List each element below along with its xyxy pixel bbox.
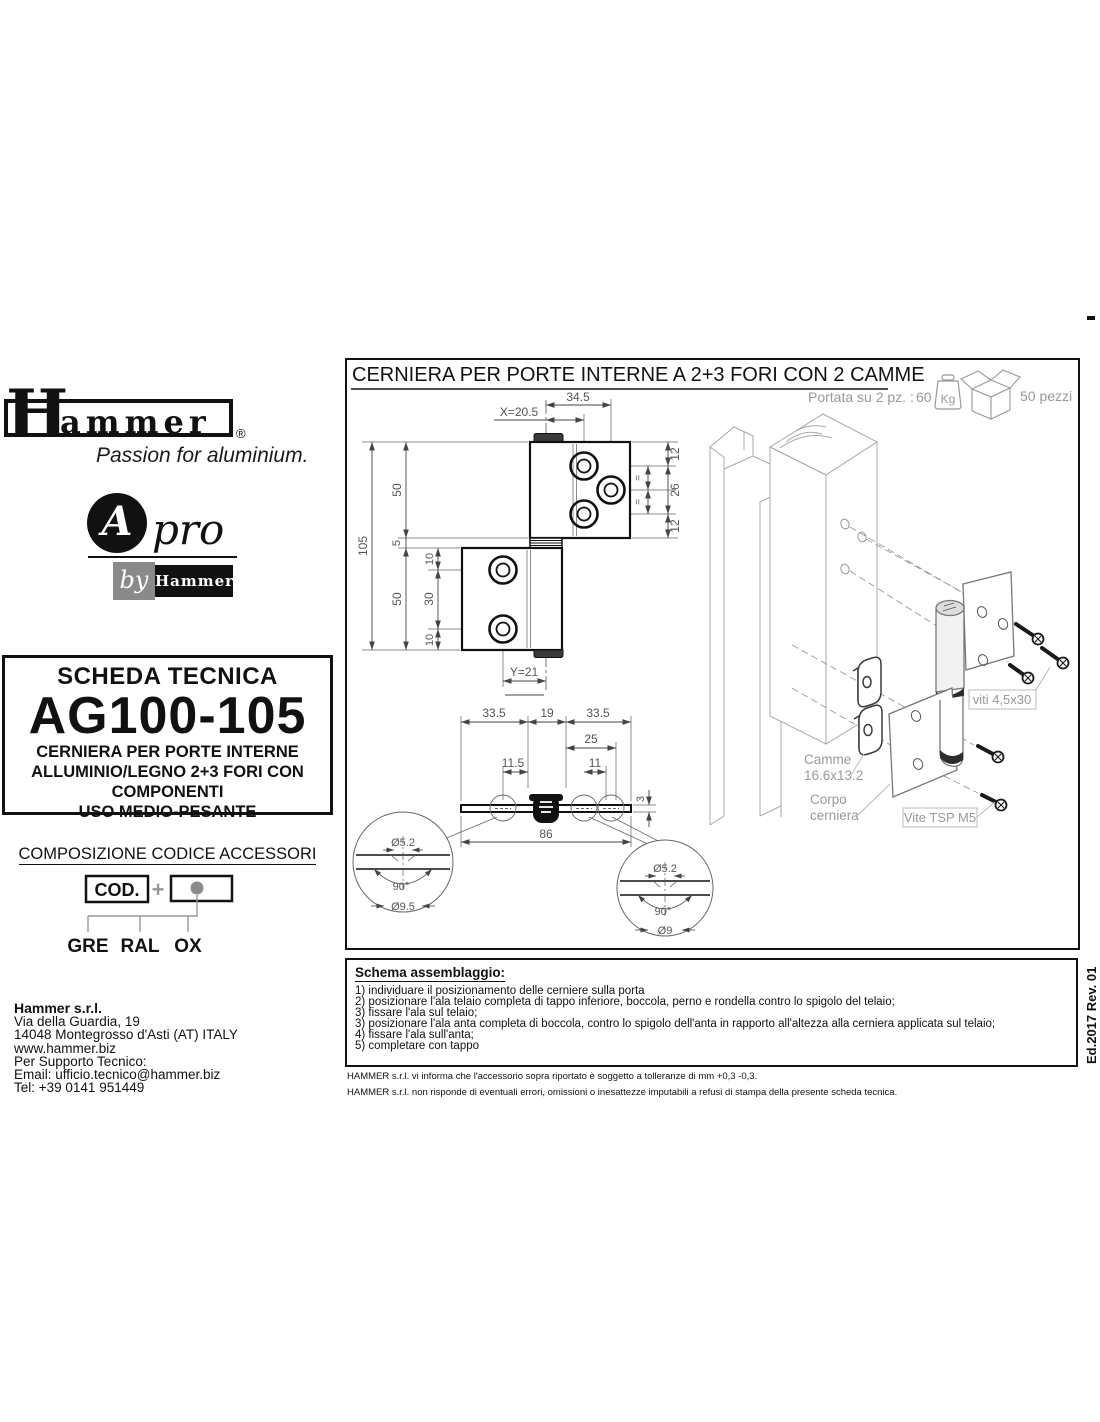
finish-dot <box>191 882 204 895</box>
capacity-label: Portata su 2 pz. : <box>808 389 914 405</box>
svg-text:X=20.5: X=20.5 <box>500 405 539 419</box>
capacity-unit: Kg <box>941 392 956 406</box>
company-line: Tel: +39 0141 951449 <box>14 1081 238 1094</box>
svg-text:86: 86 <box>539 827 553 841</box>
plus-sign: + <box>152 877 165 902</box>
finish-option-ox: OX <box>174 936 202 957</box>
corner-mark <box>1087 316 1095 320</box>
svg-text:=: = <box>633 499 644 505</box>
disclaimer-note: HAMMER s.r.l. non risponde di eventuali … <box>347 1087 897 1098</box>
svg-text:25: 25 <box>584 732 598 746</box>
knuckle <box>530 538 562 548</box>
svg-text:Ø5.2: Ø5.2 <box>391 837 415 849</box>
tech-sheet-box: SCHEDA TECNICA AG100-105 CERNIERA PER PO… <box>2 655 333 815</box>
assembly-steps: 1) individuare il posizionamento delle c… <box>355 986 1068 1052</box>
svg-text:19: 19 <box>540 706 554 720</box>
svg-text:Ø5.2: Ø5.2 <box>653 863 677 875</box>
callout-camme: Camme <box>804 752 851 767</box>
svg-text:10: 10 <box>424 553 436 565</box>
svg-text:50: 50 <box>390 592 404 606</box>
svg-text:10: 10 <box>424 634 436 646</box>
svg-text:11.5: 11.5 <box>502 756 525 770</box>
capacity-value: 60 <box>916 389 932 405</box>
apro-logo-pro: pro <box>152 505 224 554</box>
carton-box-icon <box>961 370 1020 419</box>
svg-text:3: 3 <box>635 796 647 802</box>
svg-text:Y=21: Y=21 <box>510 665 539 679</box>
apro-hammer-label: Hammer <box>155 565 233 597</box>
code-composition-title-wrap: COMPOSIZIONE CODICE ACCESSORI <box>0 845 335 864</box>
svg-text:105: 105 <box>356 536 370 556</box>
countersink-detail-right: Ø5.2 90° Ø9 <box>617 840 713 937</box>
bottom-cap <box>534 650 563 658</box>
registered-mark: ® <box>236 426 246 441</box>
extension-lines <box>461 716 656 847</box>
svg-text:33.5: 33.5 <box>586 706 610 720</box>
cod-label: COD. <box>95 880 140 900</box>
iso-view: viti 4,5x30 Camme 16.6x13.2 Corpo cernie… <box>710 414 1069 827</box>
dimension-lines <box>461 722 649 842</box>
hinge-body-stamp <box>529 794 563 823</box>
finish-option-ral: RAL <box>120 936 159 957</box>
svg-text:90°: 90° <box>655 906 672 918</box>
tolerance-note: HAMMER s.r.l. vi informa che l'accessori… <box>347 1071 757 1082</box>
svg-text:=: = <box>633 475 644 481</box>
company-line: 14048 Montegrosso d'Asti (AT) ITALY <box>14 1028 238 1041</box>
svg-text:34.5: 34.5 <box>566 390 590 404</box>
apro-logo-underline <box>88 556 237 558</box>
pack-quantity: 50 pezzi <box>1020 388 1072 404</box>
product-desc-line: COMPONENTI <box>5 783 330 801</box>
product-desc-line: CERNIERA PER PORTE INTERNE <box>5 743 330 761</box>
assembly-schema-title: Schema assemblaggio: <box>355 965 1068 980</box>
svg-text:90°: 90° <box>393 881 410 893</box>
svg-text:Ø9.5: Ø9.5 <box>391 901 415 913</box>
svg-text:33.5: 33.5 <box>482 706 506 720</box>
countersink-detail-left: Ø5.2 90° Ø9.5 <box>353 812 453 913</box>
bottom-view: 33.5 19 33.5 25 11.5 11 3 86 Ø5.2 90° Ø9… <box>353 706 713 937</box>
brand-tagline: Passion for aluminium. <box>96 444 308 468</box>
product-code: AG100-105 <box>5 691 330 741</box>
frame-wing <box>936 572 1014 703</box>
apro-by-label: by <box>113 562 155 600</box>
svg-text:30: 30 <box>422 592 436 606</box>
callout-viti: viti 4,5x30 <box>973 692 1032 707</box>
svg-text:5: 5 <box>391 540 403 546</box>
drawing-title: CERNIERA PER PORTE INTERNE A 2+3 FORI CO… <box>352 364 925 386</box>
svg-text:50: 50 <box>390 483 404 497</box>
product-desc-line: ALLUMINIO/LEGNO 2+3 FORI CON <box>5 763 330 781</box>
front-view: X=20.5 34.5 105 50 5 50 10 30 10 12 26 1… <box>356 390 682 695</box>
svg-text:11: 11 <box>589 756 602 770</box>
technical-drawing: CERNIERA PER PORTE INTERNE A 2+3 FORI CO… <box>345 358 1080 950</box>
hammer-logo-h: H <box>6 381 68 447</box>
svg-text:12: 12 <box>668 447 682 461</box>
company-line: www.hammer.biz <box>14 1042 238 1055</box>
edition-revision: Ed.2017 Rev. 01 <box>1084 967 1099 1064</box>
apro-logo-icon: A <box>87 493 147 553</box>
assembly-schema-box: Schema assemblaggio: 1) individuare il p… <box>345 958 1078 1067</box>
hammer-logo-text: ammer <box>60 403 211 441</box>
svg-text:Ø9: Ø9 <box>658 925 673 937</box>
finish-option-gre: GRE <box>67 936 108 957</box>
svg-text:26: 26 <box>668 483 682 497</box>
callout-corpo: Corpo <box>810 792 847 807</box>
code-composition-diagram: COD. + GRE RAL OX <box>55 868 285 968</box>
svg-text:12: 12 <box>668 519 682 533</box>
product-desc-line: USO MEDIO-PESANTE <box>5 803 330 821</box>
svg-text:cerniera: cerniera <box>810 808 859 823</box>
code-composition-title: COMPOSIZIONE CODICE ACCESSORI <box>19 845 317 865</box>
company-address-block: Hammer s.r.l. Via della Guardia, 19 1404… <box>14 1002 238 1094</box>
callout-vite-tsp: Vite TSP M5 <box>904 810 976 825</box>
assembly-step: 5) completare con tappo <box>355 1041 1068 1052</box>
